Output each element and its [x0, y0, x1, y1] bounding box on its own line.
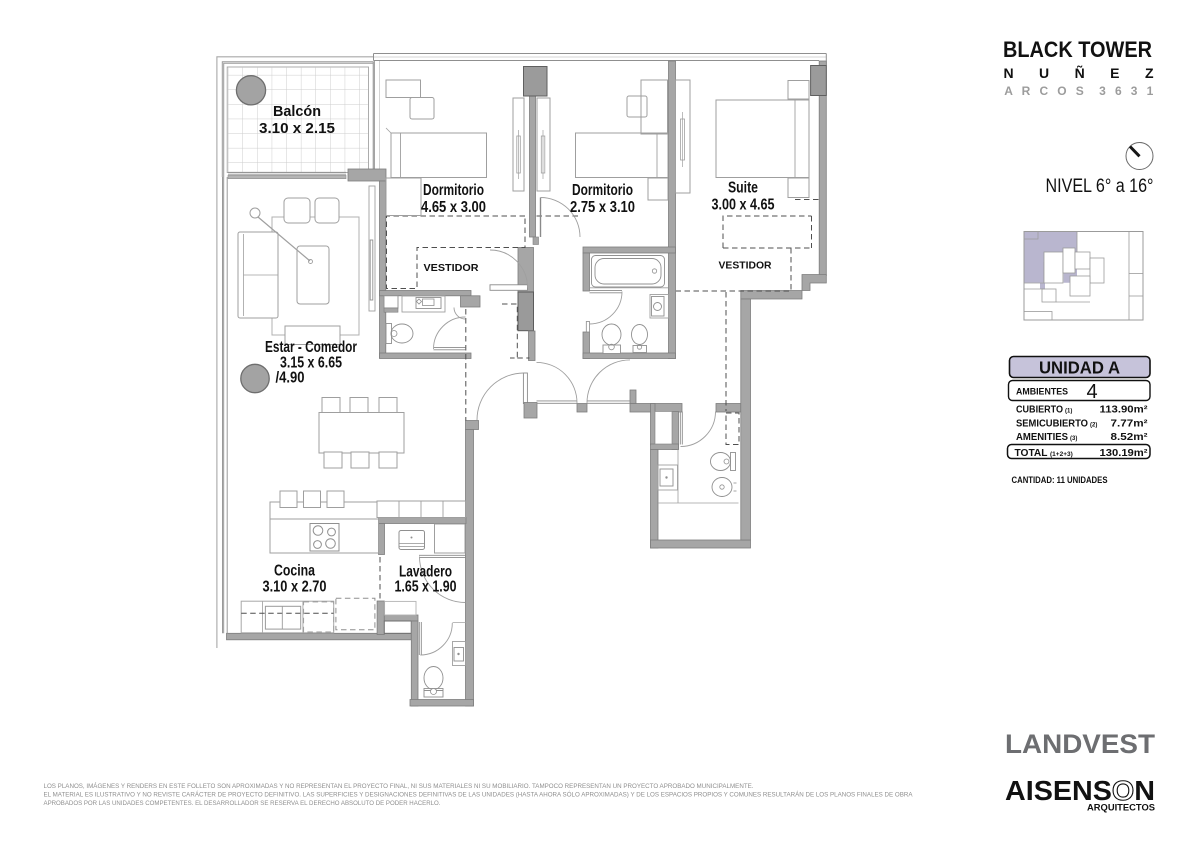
svg-text:3.10 x 2.15: 3.10 x 2.15 [259, 120, 335, 137]
svg-text:1.65 x 1.90: 1.65 x 1.90 [395, 579, 457, 596]
svg-text:VESTIDOR: VESTIDOR [719, 261, 773, 272]
svg-text:Dormitorio: Dormitorio [572, 182, 633, 199]
svg-text:EL MATERIAL ES ILUSTRATIVO Y N: EL MATERIAL ES ILUSTRATIVO Y NO REVISTE … [44, 790, 914, 799]
svg-text:/4.90: /4.90 [276, 370, 305, 387]
svg-text:(1+2+3): (1+2+3) [1050, 451, 1073, 458]
svg-text:CUBIERTO: CUBIERTO [1016, 405, 1063, 416]
svg-text:Balcón: Balcón [273, 103, 321, 120]
svg-text:(3): (3) [1070, 436, 1077, 442]
svg-text:113.90m²: 113.90m² [1100, 404, 1149, 416]
svg-text:VESTIDOR: VESTIDOR [424, 263, 480, 274]
svg-text:AMENITIES: AMENITIES [1016, 432, 1068, 443]
svg-text:NIVEL 6° a 16°: NIVEL 6° a 16° [1046, 176, 1154, 197]
svg-text:2.75 x 3.10: 2.75 x 3.10 [570, 199, 635, 216]
svg-text:SEMICUBIERTO: SEMICUBIERTO [1016, 419, 1088, 430]
svg-text:4: 4 [1086, 381, 1097, 403]
svg-text:Estar - Comedor: Estar - Comedor [265, 339, 357, 356]
svg-text:APROBADOS POR LAS UNIDADES COM: APROBADOS POR LAS UNIDADES COMPETENTES. … [44, 800, 441, 807]
svg-text:ARQUITECTOS: ARQUITECTOS [1087, 803, 1155, 814]
svg-text:AISENSON: AISENSON [1005, 775, 1155, 806]
svg-text:Cocina: Cocina [274, 563, 315, 580]
svg-text:4.65 x 3.00: 4.65 x 3.00 [421, 199, 486, 216]
svg-text:N U Ñ E Z: N U Ñ E Z [1004, 64, 1154, 81]
svg-text:(1): (1) [1065, 409, 1072, 415]
svg-text:(2): (2) [1090, 423, 1097, 429]
svg-text:LANDVEST: LANDVEST [1005, 729, 1156, 759]
svg-text:7.77m²: 7.77m² [1111, 418, 1149, 430]
svg-text:3.10 x 2.70: 3.10 x 2.70 [263, 579, 327, 596]
svg-text:Suite: Suite [728, 180, 758, 197]
svg-text:Dormitorio: Dormitorio [423, 182, 484, 199]
svg-text:TOTAL: TOTAL [1015, 447, 1049, 459]
svg-text:UNIDAD A: UNIDAD A [1039, 358, 1120, 378]
svg-text:8.52m²: 8.52m² [1111, 431, 1149, 443]
svg-text:CANTIDAD: 11 UNIDADES: CANTIDAD: 11 UNIDADES [1012, 475, 1108, 486]
svg-text:LOS PLANOS, IMÁGENES Y RENDERS: LOS PLANOS, IMÁGENES Y RENDERS EN ESTE F… [44, 781, 754, 790]
svg-text:130.19m²: 130.19m² [1100, 447, 1149, 459]
svg-text:3.00 x 4.65: 3.00 x 4.65 [712, 197, 775, 214]
svg-text:BLACK TOWER: BLACK TOWER [1003, 37, 1152, 62]
svg-text:A R C O S 3 6 3 1: A R C O S 3 6 3 1 [1004, 84, 1153, 98]
svg-text:AMBIENTES: AMBIENTES [1016, 387, 1068, 398]
